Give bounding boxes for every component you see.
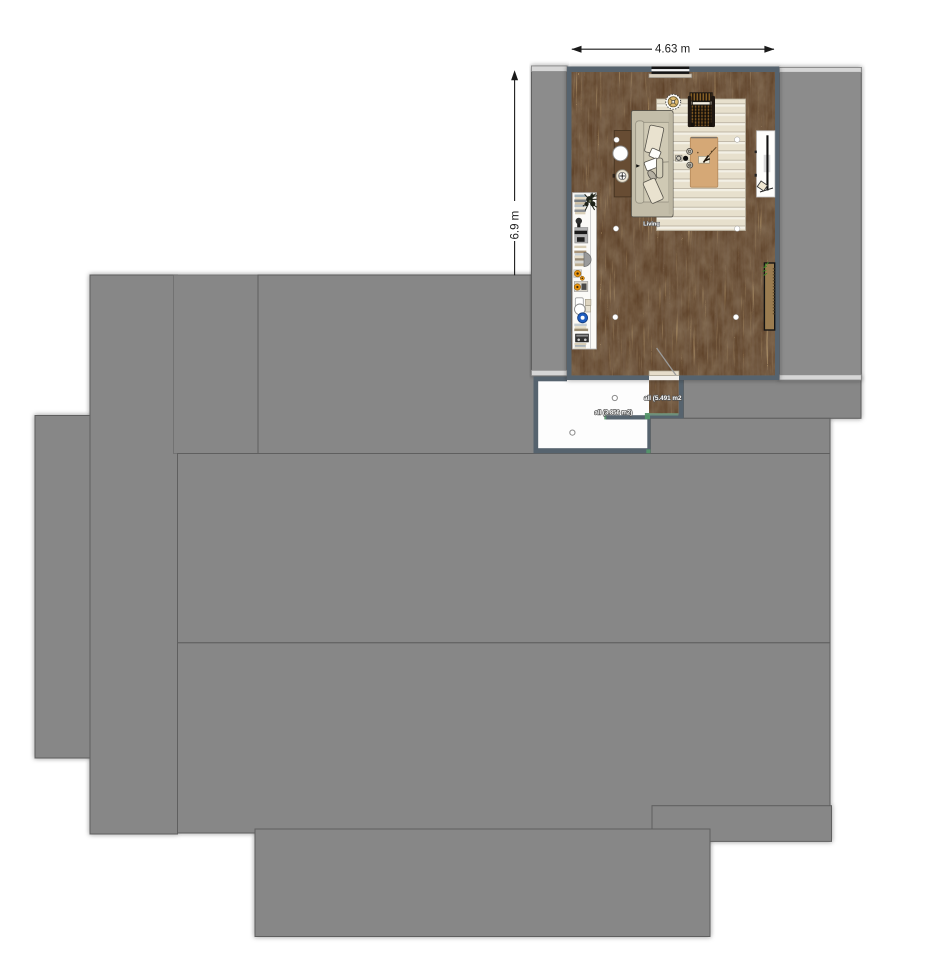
svg-text:6.9 m: 6.9 m — [509, 211, 521, 240]
svg-text:4.63 m: 4.63 m — [655, 43, 690, 55]
svg-text:all (3.856 m2): all (3.856 m2) — [595, 411, 633, 417]
svg-text:all (5.491 m2: all (5.491 m2 — [644, 395, 682, 402]
svg-text:Living: Living — [643, 222, 660, 228]
